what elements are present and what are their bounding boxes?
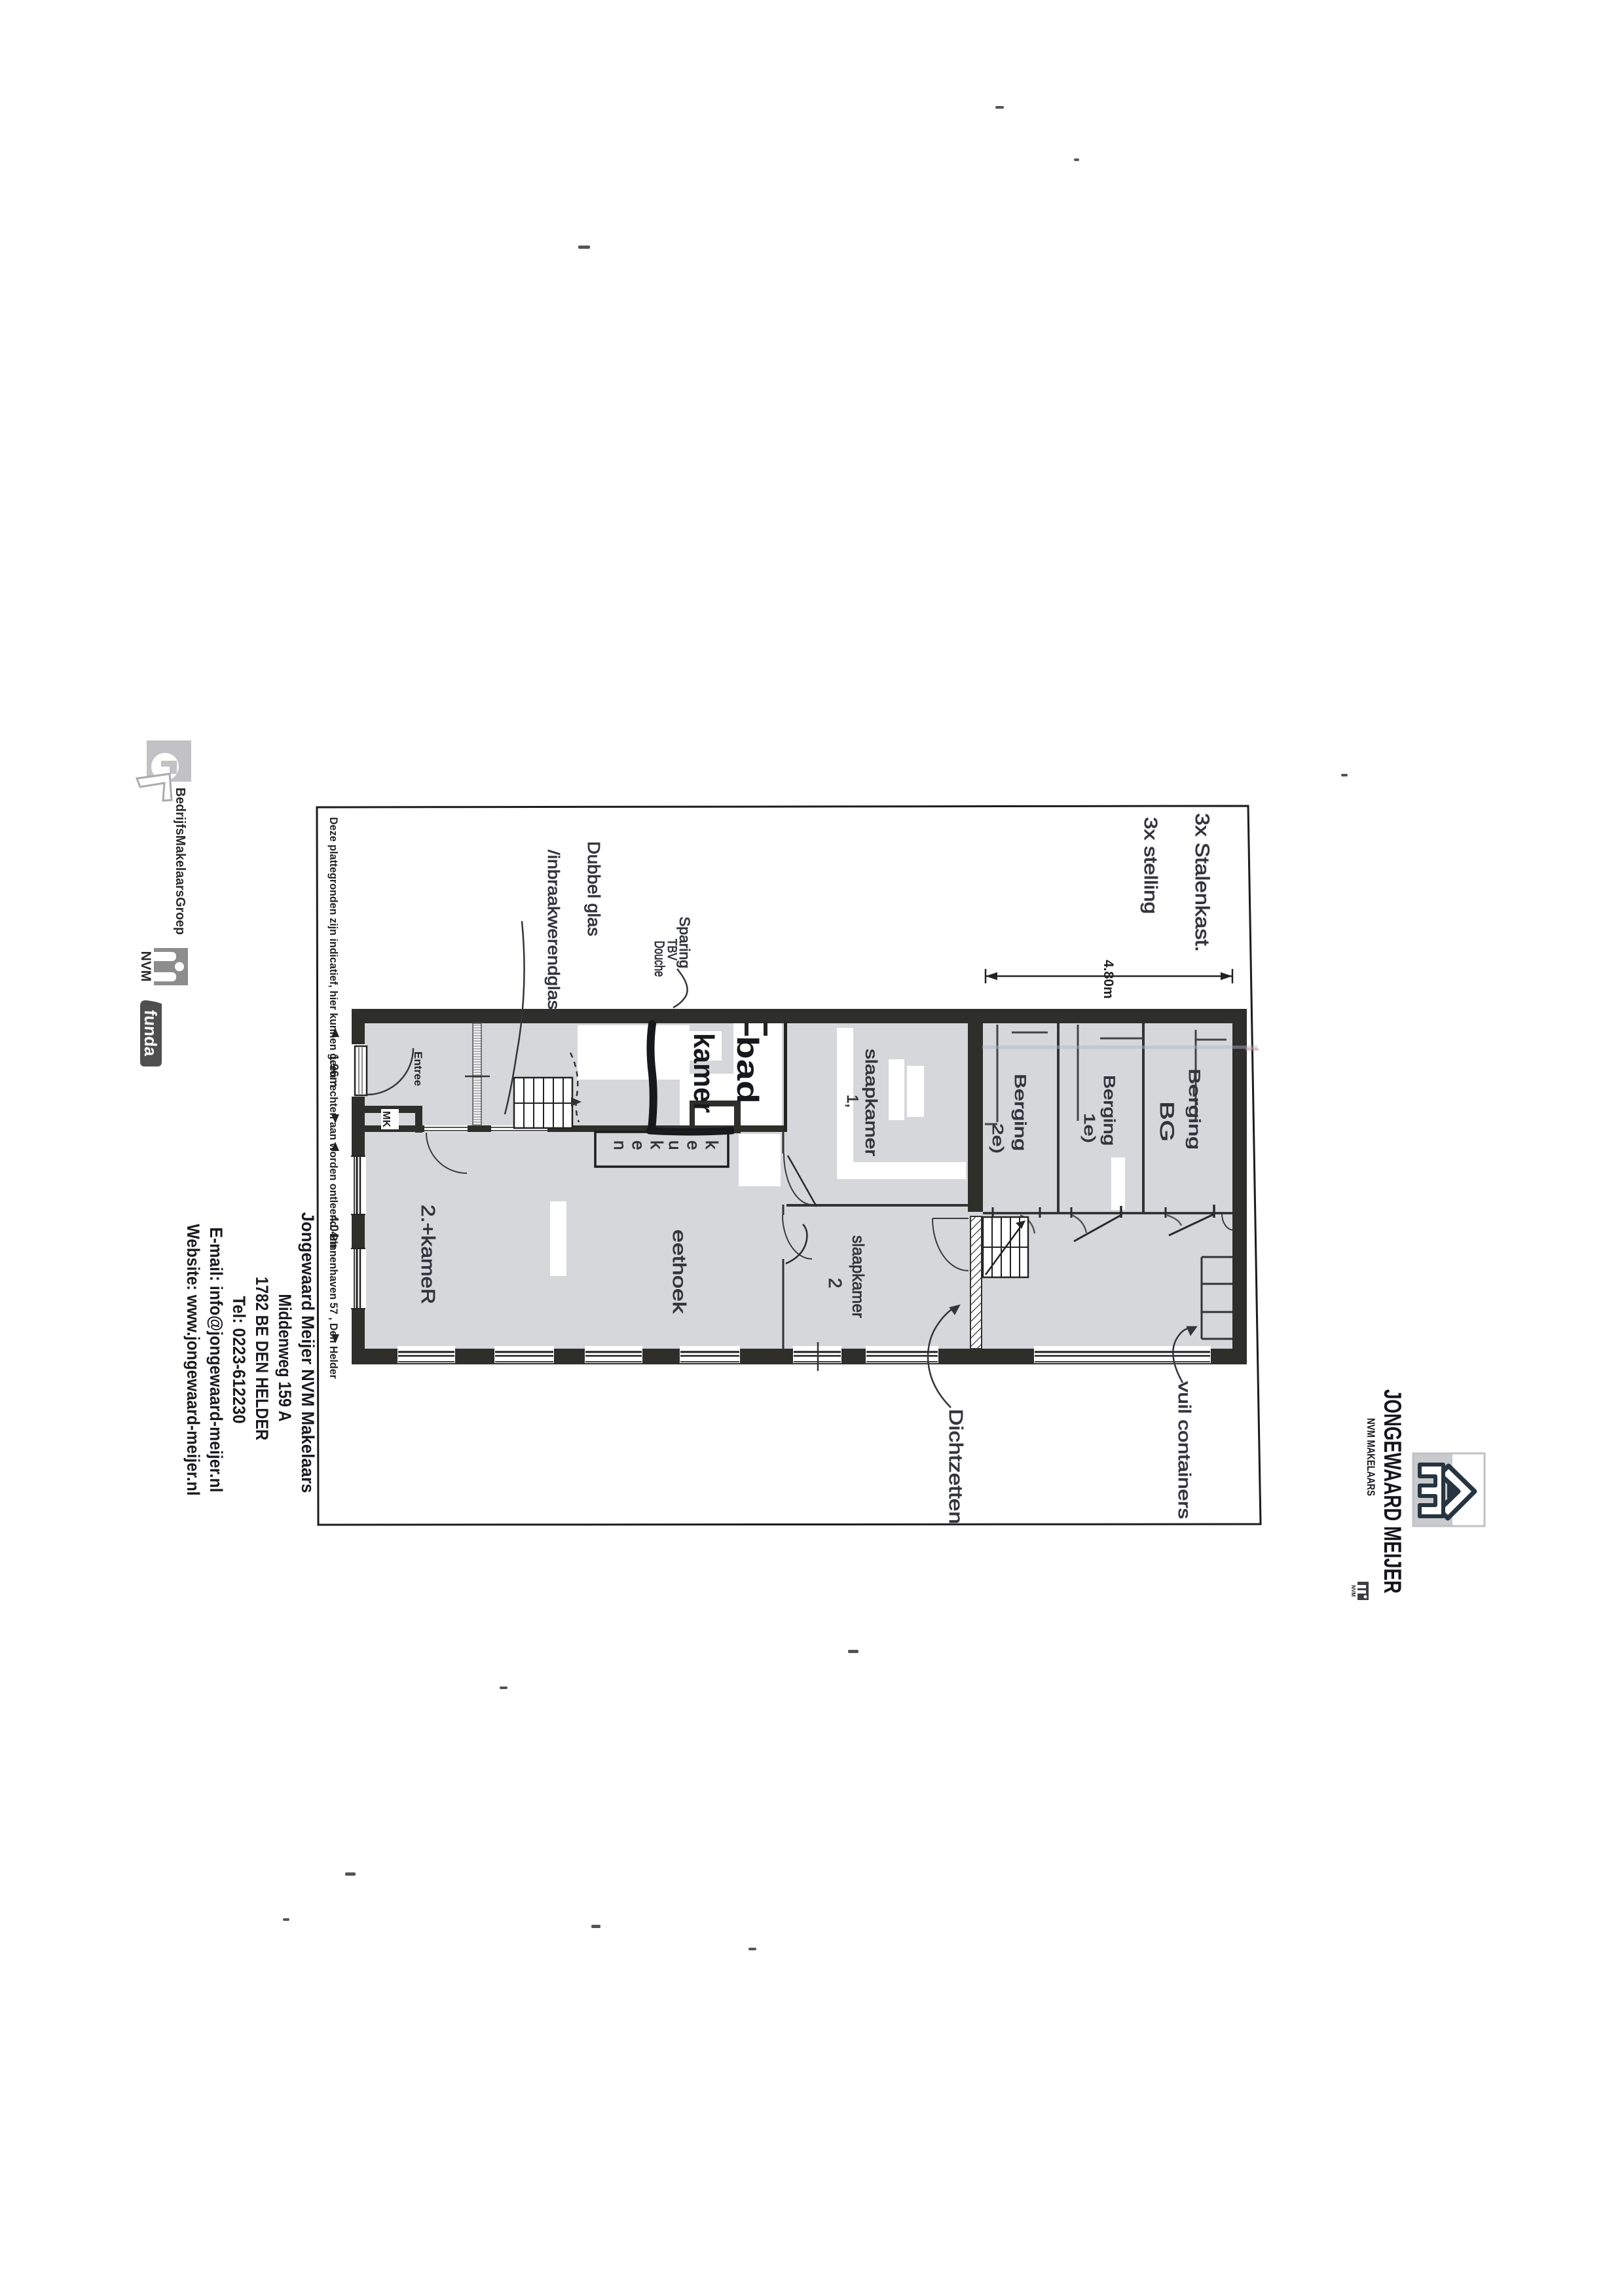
- svg-text:JONGEWAARD MEIJER: JONGEWAARD MEIJER: [1379, 1389, 1406, 1594]
- svg-text:Website: www.jongewaard-meijer: Website: www.jongewaard-meijer.nl: [183, 1224, 203, 1496]
- svg-text:/inbraakwerendglas: /inbraakwerendglas: [544, 850, 563, 1010]
- svg-text:eethoek: eethoek: [669, 1230, 690, 1314]
- svg-text:2e): 2e): [989, 1123, 1006, 1154]
- svg-text:4.80m: 4.80m: [1101, 960, 1116, 999]
- svg-text:1782 BE DEN HELDER: 1782 BE DEN HELDER: [252, 1277, 272, 1440]
- svg-text:2: 2: [825, 1278, 845, 1288]
- svg-text:kamer: kamer: [688, 1033, 720, 1113]
- svg-text:slaapkamer: slaapkamer: [862, 1049, 880, 1156]
- svg-text:1e): 1e): [1081, 1113, 1098, 1143]
- svg-text:n: n: [610, 1140, 630, 1150]
- svg-text:E-mail: info@jongewaard-meijer: E-mail: info@jongewaard-meijer.nl: [206, 1228, 226, 1493]
- svg-text:3x stelling: 3x stelling: [1141, 817, 1161, 914]
- svg-text:bad: bad: [731, 1036, 765, 1104]
- svg-text:Berging: Berging: [1185, 1068, 1203, 1150]
- svg-text:Deze plattegronden zijn indica: Deze plattegronden zijn indicatief, hier…: [327, 817, 340, 1379]
- svg-text:e: e: [684, 1140, 703, 1150]
- svg-text:Dubbel glas: Dubbel glas: [584, 841, 604, 936]
- svg-text:e: e: [629, 1140, 648, 1150]
- svg-text:NVM: NVM: [1350, 1585, 1356, 1597]
- svg-text:k: k: [647, 1140, 667, 1150]
- svg-text:BedrijfsMakelaarsGroep: BedrijfsMakelaarsGroep: [173, 788, 187, 935]
- svg-text:MK: MK: [380, 1111, 392, 1127]
- svg-text:Entree: Entree: [412, 1051, 424, 1086]
- svg-text:Middenweg 159 A: Middenweg 159 A: [275, 1294, 295, 1422]
- svg-text:2.+kameR: 2.+kameR: [417, 1205, 438, 1304]
- svg-text:NVM MAKELAARS: NVM MAKELAARS: [1365, 1418, 1377, 1496]
- svg-text:k: k: [702, 1140, 722, 1150]
- svg-text:Dichtzetten: Dichtzetten: [945, 1409, 966, 1524]
- svg-text:1,: 1,: [843, 1095, 861, 1108]
- svg-text:vuil containers: vuil containers: [1175, 1381, 1194, 1519]
- svg-text:NVM: NVM: [138, 951, 153, 982]
- svg-text:Berging: Berging: [1100, 1075, 1118, 1146]
- svg-text:u: u: [665, 1140, 685, 1150]
- svg-text:3x Stalenkast.: 3x Stalenkast.: [1191, 813, 1213, 952]
- svg-text:BG: BG: [1156, 1101, 1177, 1142]
- svg-text:Jongewaard Meijer NVM Makelaar: Jongewaard Meijer NVM Makelaars: [298, 1212, 318, 1493]
- svg-text:Tel: 0223-612230: Tel: 0223-612230: [229, 1296, 249, 1424]
- svg-text:Douche: Douche: [652, 941, 667, 977]
- svg-text:funda: funda: [141, 1010, 160, 1057]
- svg-text:Berging: Berging: [1011, 1074, 1029, 1151]
- svg-text:slaapkamer: slaapkamer: [849, 1235, 867, 1318]
